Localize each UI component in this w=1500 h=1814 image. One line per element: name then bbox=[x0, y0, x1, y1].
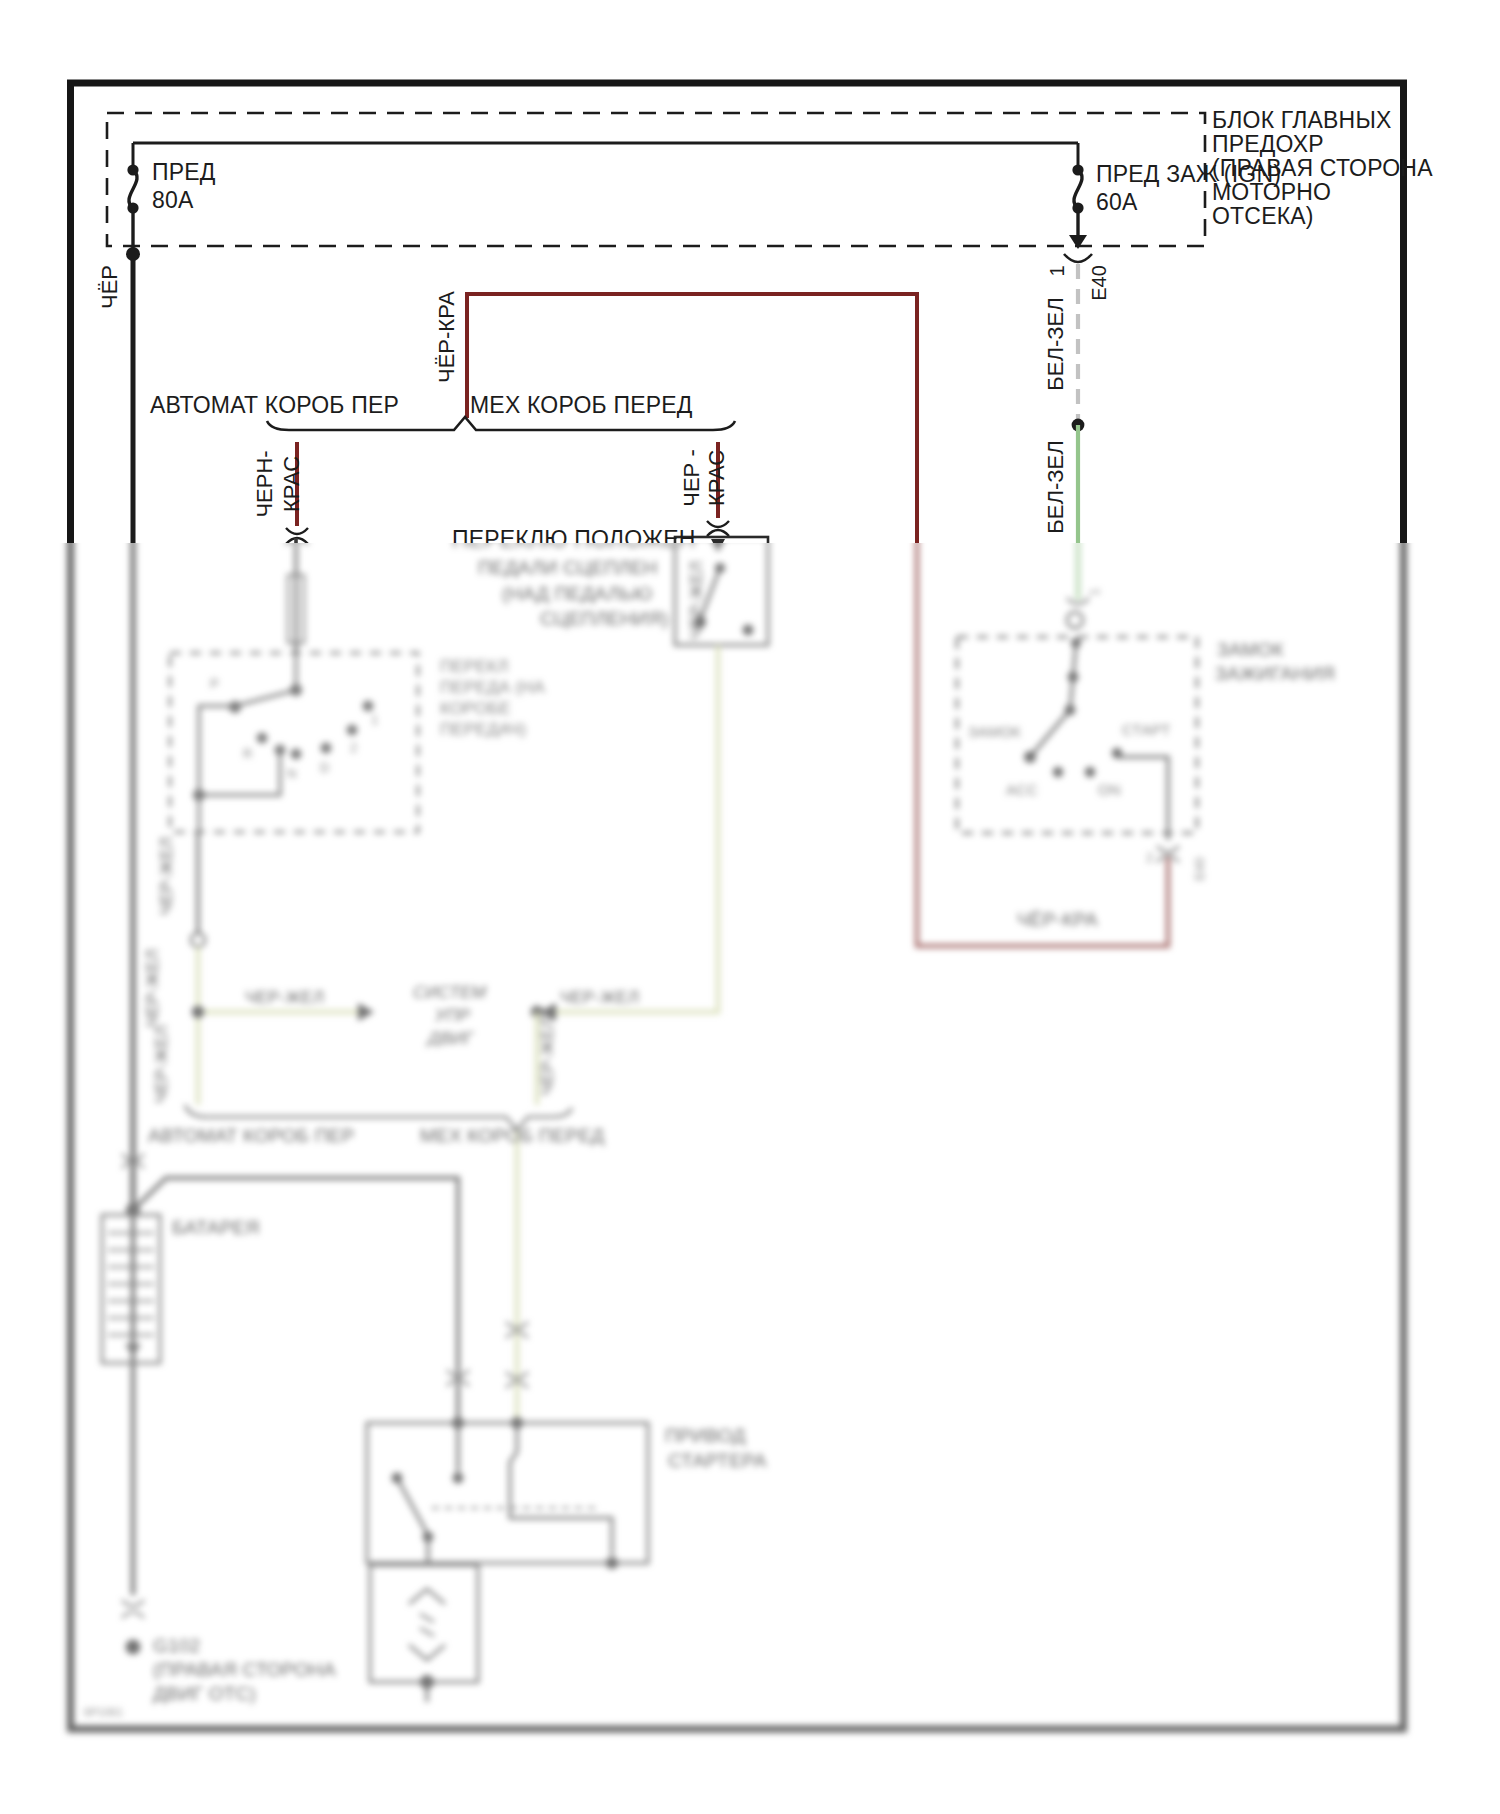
fuse-block-label-line5: ОТСЕКА) bbox=[1212, 204, 1314, 228]
range-pos-d: D bbox=[320, 756, 330, 780]
range-switch-box bbox=[170, 653, 418, 832]
fuse-60a-rating: 60А bbox=[1096, 190, 1138, 214]
range-switch-entry-wire bbox=[288, 538, 304, 653]
wire-label-chern-kras-1: ЧЕРН- bbox=[252, 450, 278, 517]
section-label-at-lower: АВТОМАТ КОРОБ ПЕР bbox=[148, 1124, 354, 1148]
fuse-60a-name: ПРЕД ЗАЖ (IGN) bbox=[1096, 162, 1281, 186]
ecm-label-line2: УПР bbox=[435, 1004, 470, 1028]
wire-label-cher-zhel-7: ЧЕР-ЖЕЛ bbox=[687, 561, 707, 639]
ignition-pin-2: 2 bbox=[1146, 846, 1153, 870]
range-pos-1: 1 bbox=[371, 708, 378, 732]
section-label-at: АВТОМАТ КОРОБ ПЕР bbox=[150, 393, 399, 417]
fuse-80a-rating: 80А bbox=[152, 188, 194, 212]
fuse-block-label-line2: ПРЕДОХР bbox=[1212, 132, 1324, 156]
brace-transmission-split bbox=[267, 417, 735, 430]
starter-solenoid-box bbox=[367, 1417, 648, 1569]
ignition-pos-start: СТАРТ bbox=[1122, 718, 1171, 742]
wire-label-cher-kra: ЧЁР-КРА bbox=[434, 291, 460, 383]
wire-label-cher-zhel-5: ЧЕР-ЖЕЛ bbox=[560, 986, 639, 1010]
starter-label-line1: ПРИВОД bbox=[665, 1424, 745, 1448]
range-pos-n: N bbox=[287, 762, 297, 786]
ground-label-line3: ДВИГ ОТС) bbox=[153, 1682, 256, 1706]
wire-battery-branch bbox=[122, 1154, 469, 1423]
ground-label-line1: G102 bbox=[153, 1634, 200, 1658]
wire-label-cher-kras-1: ЧЕР - bbox=[679, 449, 705, 506]
battery-symbol bbox=[102, 1210, 160, 1655]
wire-label-bel-zel-lower: БЕЛ-ЗЕЛ bbox=[1043, 440, 1069, 533]
ground-label-line2: (ПРАВАЯ СТОРОНА bbox=[153, 1658, 336, 1682]
range-switch-label-line4: ПЕРЕДАЧ) bbox=[440, 718, 526, 742]
fuse-60a-symbol bbox=[1069, 164, 1087, 249]
wiring-diagram-page: БЛОК ГЛАВНЫХ ПРЕДОХР (ПРАВАЯ СТОРОНА МОТ… bbox=[0, 0, 1500, 1814]
fuse-bus-wire bbox=[133, 143, 1078, 169]
ignition-e40-label: E40 bbox=[1192, 857, 1207, 880]
clutch-switch-label-line3: (НАД ПЕДАЛЬЮ bbox=[502, 582, 652, 606]
wire-label-cher-zhel-4: ЧЕР-ЖЕЛ bbox=[245, 986, 324, 1010]
ecm-label-line1: СИСТЕМ bbox=[413, 981, 486, 1005]
doc-code: 6P1061 bbox=[84, 1700, 123, 1724]
fuse-block-label-line1: БЛОК ГЛАВНЫХ bbox=[1212, 108, 1392, 132]
ground-dot bbox=[126, 1640, 141, 1655]
ignition-pos-acc: АСС bbox=[1006, 778, 1038, 802]
wire-label-cher-kra-lower: ЧЁР-КРА bbox=[1017, 908, 1098, 932]
fuse-block-dashed-box bbox=[107, 113, 1205, 246]
wire-label-cher-kras-2: КРАС bbox=[704, 450, 730, 506]
arrow-down-icon bbox=[125, 1344, 141, 1356]
wire-label-cher: ЧЁР bbox=[97, 265, 123, 309]
ignition-label-line1: ЗАМОК bbox=[1217, 638, 1284, 662]
ignition-pos-on: ON bbox=[1098, 778, 1121, 802]
wire-label-cher-zhel-2: ЧЕР-ЖЕЛ bbox=[143, 949, 163, 1027]
fuse-80a-name: ПРЕД bbox=[152, 160, 216, 184]
range-pos-r: R bbox=[243, 742, 253, 766]
arrow-right-icon bbox=[358, 1003, 374, 1021]
wire-label-cher-zhel-6: ЧЕР-ЖЕЛ bbox=[538, 1017, 558, 1095]
ignition-pin-1: 1 bbox=[1087, 588, 1102, 595]
wire-cher-zhel-to-starter bbox=[506, 1130, 528, 1423]
clutch-switch-label-line2: ПЕДАЛИ СЦЕПЛЕН bbox=[478, 556, 657, 580]
starter-label-line2: СТАРТЕРА bbox=[668, 1449, 767, 1473]
ignition-label-line2: ЗАЖИГАНИЯ bbox=[1215, 662, 1335, 686]
starter-motor-box bbox=[370, 1565, 478, 1702]
section-label-mt: МЕХ КОРОБ ПЕРЕД bbox=[470, 393, 693, 417]
wire-label-chern-kras-2: КРАС bbox=[279, 456, 305, 512]
wire-label-cher-zhel-1: ЧЕР-ЖЕЛ bbox=[157, 837, 177, 915]
battery-label: БАТАРЕЯ bbox=[172, 1216, 259, 1240]
connector-e40-icon bbox=[1064, 254, 1092, 262]
section-label-mt-lower: МЕХ КОРОБ ПЕРЕД bbox=[420, 1124, 604, 1148]
connector-pin-1: 1 bbox=[1046, 265, 1069, 276]
connector-e40-label: E40 bbox=[1088, 265, 1111, 301]
clutch-switch-label-line4: СЦЕПЛЕНИЯ) bbox=[540, 607, 669, 631]
wire-label-bel-zel-upper: БЕЛ-ЗЕЛ bbox=[1043, 297, 1069, 390]
range-pos-2: 2 bbox=[350, 736, 357, 760]
ecm-label-line3: ДВИГ bbox=[428, 1027, 474, 1051]
wire-label-cher-zhel-3: ЧЕР-ЖЕЛ bbox=[152, 1025, 172, 1103]
ignition-pos-lock: ЗАМОК bbox=[968, 720, 1021, 744]
fuse-80a-symbol bbox=[127, 164, 138, 254]
range-pos-p: P bbox=[210, 672, 219, 696]
